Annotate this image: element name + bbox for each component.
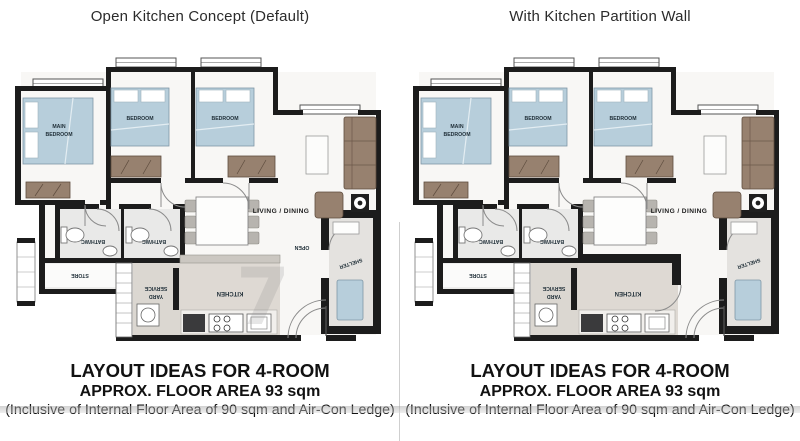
panel-open-kitchen: Open Kitchen Concept (Default) [0,0,400,441]
screenshot-root: Open Kitchen Concept (Default) [0,0,800,441]
caption-line1: LAYOUT IDEAS FOR 4-ROOM [0,360,400,382]
caption-line2: APPROX. FLOOR AREA 93 sqm [0,382,400,401]
bottom-edge-band [0,406,800,413]
plan-title-right: With Kitchen Partition Wall [400,8,800,25]
floorplan-base-instance [413,58,779,341]
floorplan-open-kitchen: MAIN BEDROOM BEDROOM BEDROOM LIVING / DI… [15,52,391,348]
plan-title-left: Open Kitchen Concept (Default) [0,8,400,25]
caption-line2: APPROX. FLOOR AREA 93 sqm [400,382,800,401]
panel-kitchen-partition: With Kitchen Partition Wall LAYOUT IDEAS… [400,0,800,441]
floorplan-base-instance [15,58,381,341]
watermark-glyph: 7 [236,253,290,343]
floorplan-kitchen-partition [413,52,789,348]
caption-line1: LAYOUT IDEAS FOR 4-ROOM [400,360,800,382]
label-open: OPEN [294,244,309,250]
